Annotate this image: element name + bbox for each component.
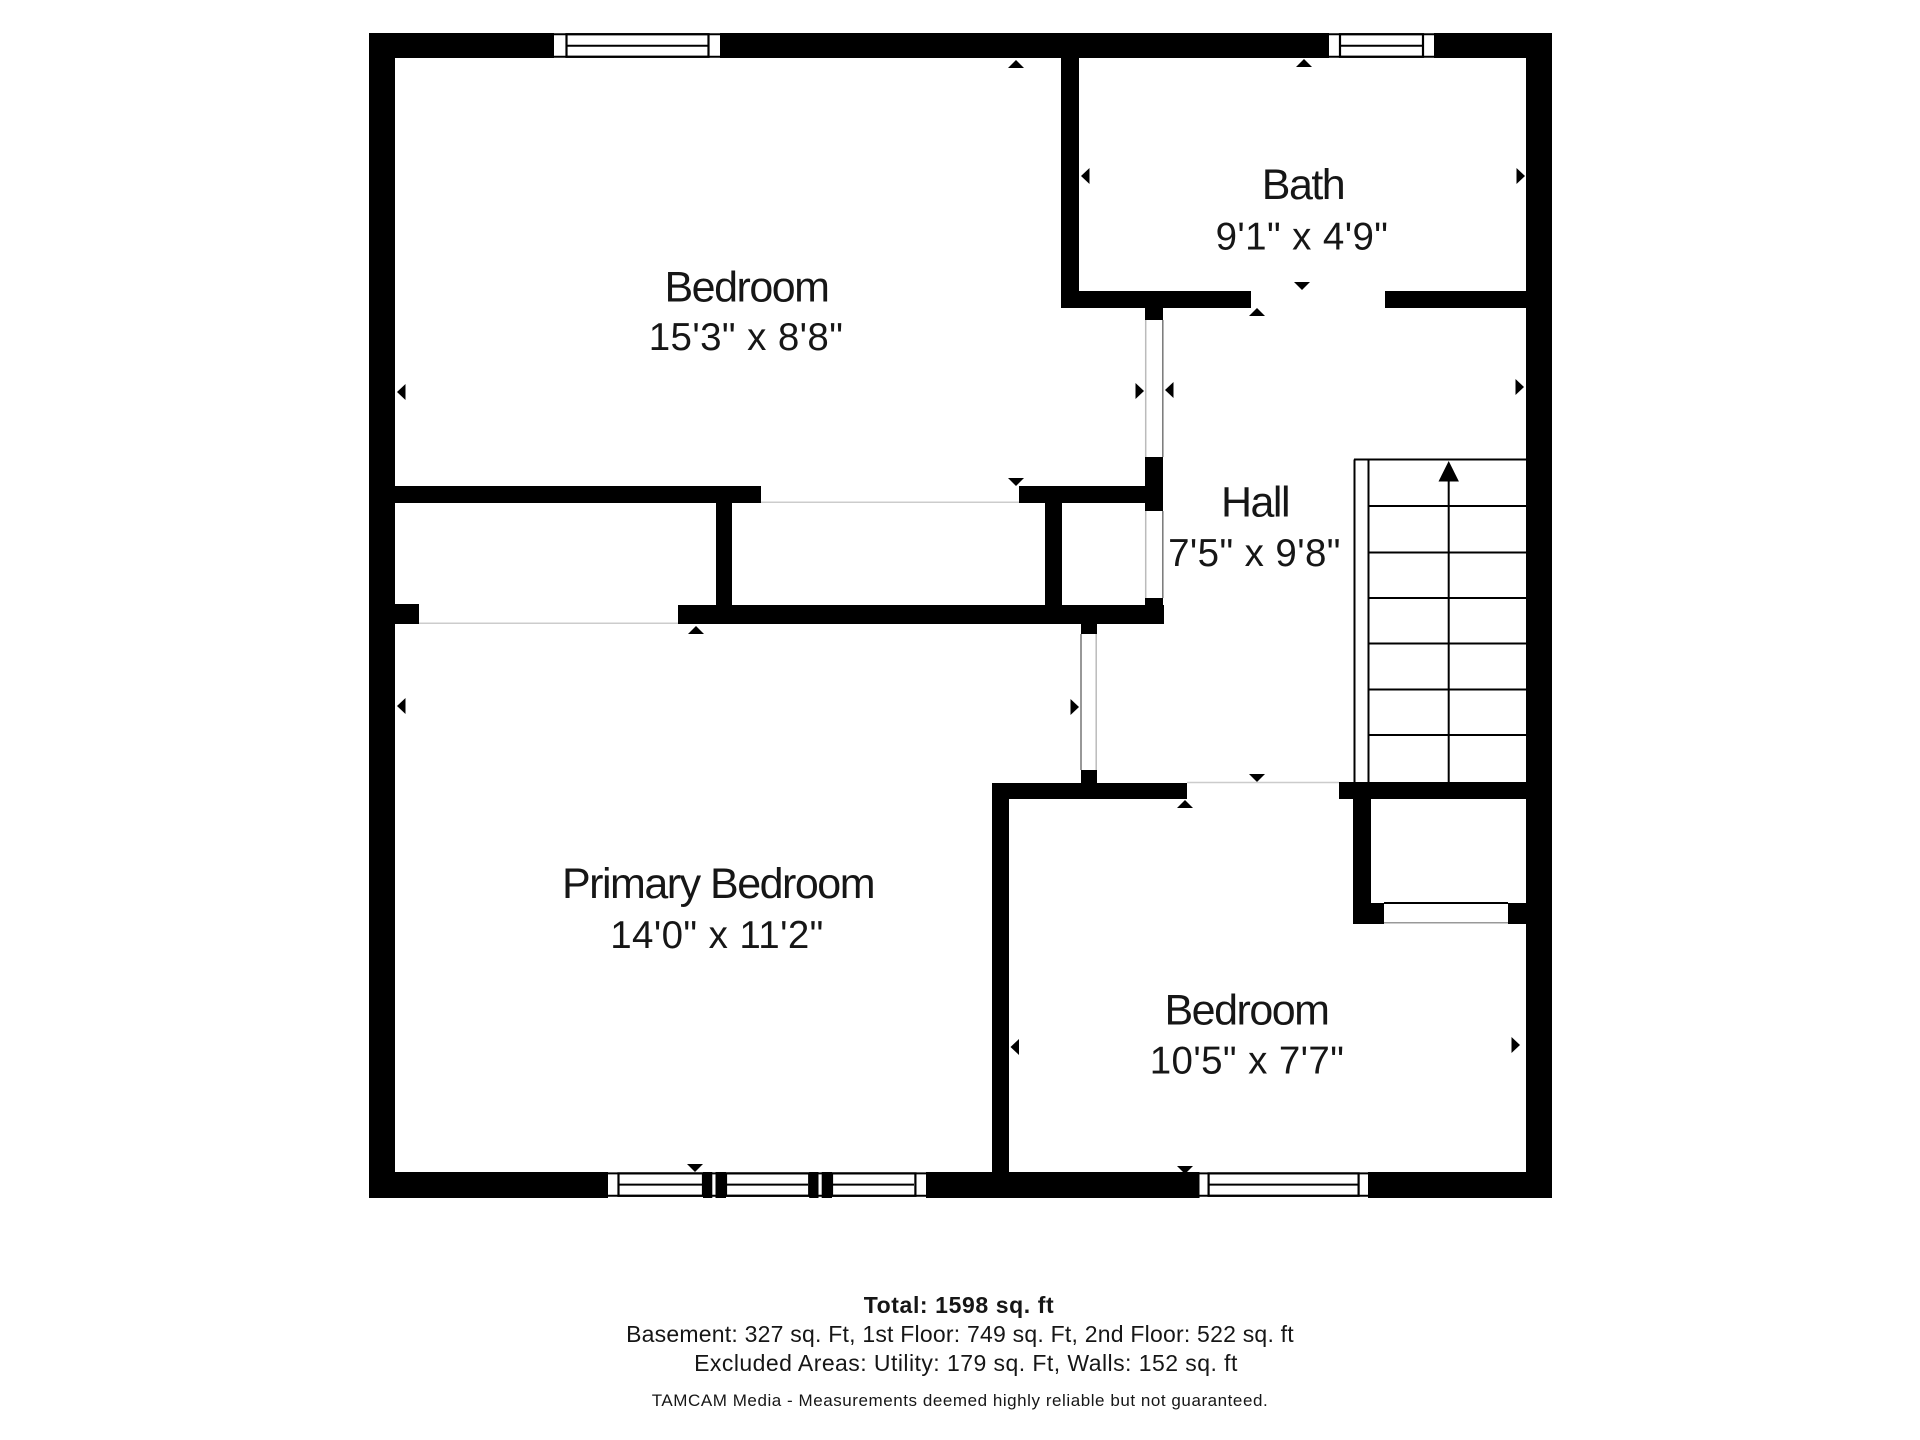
svg-text:Bedroom: Bedroom (665, 264, 829, 312)
svg-text:7'5" x 9'8": 7'5" x 9'8" (1168, 532, 1341, 575)
svg-text:14'0" x 11'2": 14'0" x 11'2" (610, 914, 824, 957)
svg-text:Hall: Hall (1221, 479, 1289, 527)
svg-text:Primary Bedroom: Primary Bedroom (562, 860, 874, 908)
svg-text:Basement: 327 sq. Ft, 1st Floo: Basement: 327 sq. Ft, 1st Floor: 749 sq.… (626, 1321, 1294, 1347)
svg-text:15'3" x 8'8": 15'3" x 8'8" (649, 316, 844, 359)
svg-text:Excluded Areas: Utility: 179 s: Excluded Areas: Utility: 179 sq. Ft, Wal… (694, 1350, 1238, 1376)
svg-text:10'5" x 7'7": 10'5" x 7'7" (1150, 1040, 1345, 1083)
svg-text:9'1" x 4'9": 9'1" x 4'9" (1216, 216, 1389, 259)
svg-text:Total: 1598 sq. ft: Total: 1598 sq. ft (864, 1292, 1055, 1318)
svg-text:Bedroom: Bedroom (1165, 987, 1329, 1035)
svg-text:TAMCAM Media - Measurements de: TAMCAM Media - Measurements deemed highl… (652, 1391, 1268, 1410)
svg-text:Bath: Bath (1262, 161, 1344, 209)
